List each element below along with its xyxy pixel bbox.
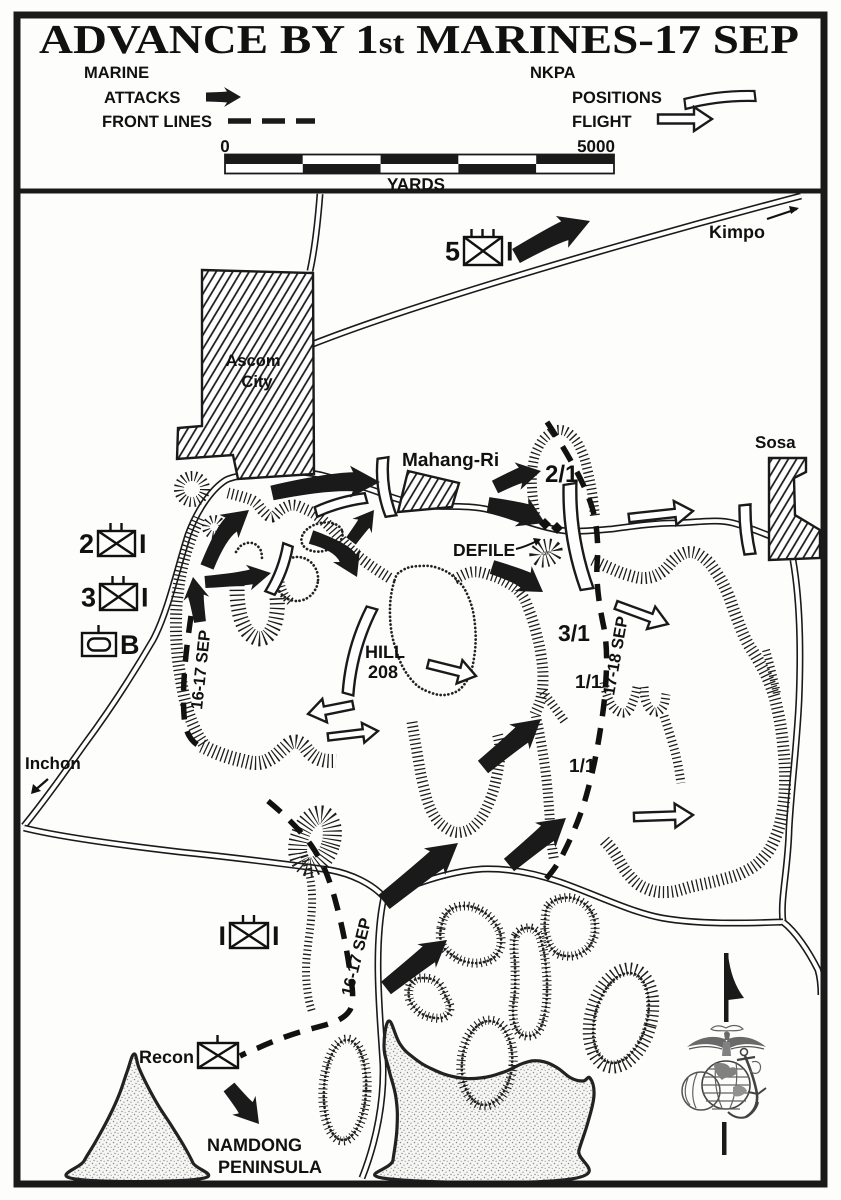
svg-text:Mahang-Ri: Mahang-Ri — [402, 450, 499, 471]
svg-text:FRONT LINES: FRONT LINES — [102, 113, 212, 131]
svg-text:DEFILE: DEFILE — [453, 540, 515, 560]
svg-text:FLIGHT: FLIGHT — [572, 113, 632, 131]
svg-text:1/1: 1/1 — [569, 756, 596, 777]
svg-text:3/1: 3/1 — [558, 620, 590, 646]
svg-text:City: City — [241, 373, 273, 391]
svg-text:I: I — [272, 921, 280, 951]
svg-text:ADVANCE BY 1st MARINES-17: ADVANCE BY 1st MARINES-17 SEP — [39, 16, 799, 62]
svg-text:HILL: HILL — [365, 642, 405, 662]
svg-text:Ascom: Ascom — [225, 352, 280, 370]
svg-text:I: I — [139, 529, 147, 559]
svg-text:2/1: 2/1 — [545, 461, 578, 488]
svg-text:1/1: 1/1 — [575, 672, 602, 693]
svg-text:Sosa: Sosa — [755, 433, 796, 452]
svg-text:YARDS: YARDS — [387, 175, 445, 194]
svg-text:3: 3 — [81, 583, 96, 613]
svg-text:16-17 SEP: 16-17 SEP — [188, 629, 214, 710]
svg-text:I: I — [141, 583, 149, 613]
svg-text:NAMDONG: NAMDONG — [207, 1135, 302, 1155]
svg-text:5: 5 — [445, 237, 460, 267]
svg-text:B: B — [120, 630, 140, 660]
svg-text:ATTACKS: ATTACKS — [104, 89, 180, 107]
svg-text:Inchon: Inchon — [25, 754, 81, 773]
svg-text:I: I — [506, 237, 514, 267]
svg-text:MARINE: MARINE — [84, 64, 149, 82]
svg-text:208: 208 — [368, 662, 398, 682]
svg-text:I: I — [218, 921, 226, 951]
svg-text:5000: 5000 — [577, 137, 615, 156]
svg-text:Kimpo: Kimpo — [709, 222, 765, 242]
svg-text:2: 2 — [79, 529, 94, 559]
svg-text:0: 0 — [220, 137, 229, 156]
svg-text:POSITIONS: POSITIONS — [572, 89, 662, 107]
svg-text:Recon: Recon — [139, 1047, 194, 1067]
svg-text:PENINSULA: PENINSULA — [218, 1157, 322, 1177]
svg-text:NKPA: NKPA — [530, 64, 576, 82]
